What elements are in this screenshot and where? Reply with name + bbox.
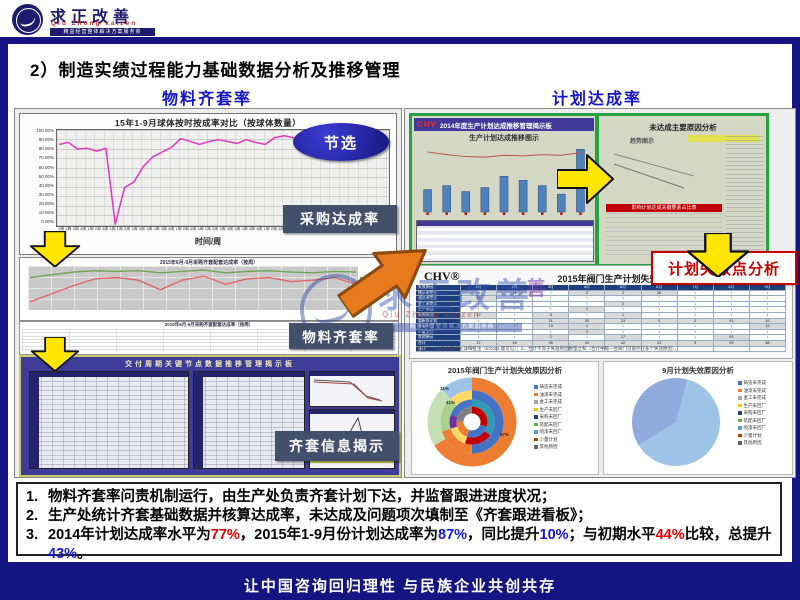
failure-table: 失效原因1月2月3月4月5月6月7月8月9月铸造未完成921\2226\\\油漆…	[416, 285, 786, 352]
watermark-stamp: 善	[526, 272, 546, 301]
dashboard-banner: CHV 2014年度生产计划达成推移管理揭示板	[414, 118, 594, 131]
purchase-rate-callout: 采购达成率	[283, 205, 397, 233]
right-column-header: 计划达成率	[404, 85, 790, 109]
sep-pie-panel: 9月计划失效原因分析 铸造未完成油漆未完成金工未完成生产未回厂采购未回厂装配未回…	[603, 361, 793, 475]
red-table-header: 影响计划达成关键要素占比表	[606, 204, 722, 212]
slide: 求正改善 Qiu Zhong kaizen 精益经营整体解决方案服务商 2）制造…	[0, 0, 800, 600]
note-text: 物料齐套率问责机制运行，由生产处负责齐套计划下达，并监督跟进进度状况；	[48, 488, 556, 507]
sunburst-legend: 铸造未完成油漆未完成金工未完成生产未回厂采购未回厂装配未回厂喷漆未回厂少量计划其…	[534, 384, 562, 450]
down-arrow-2	[27, 337, 83, 371]
kit-info-callout: 齐套信息揭示	[275, 431, 399, 461]
failure-table-footnote: 备注：1、失效数量录入详细批注（EXCEL版可见）；2、合计不等于失效原因数量之…	[416, 346, 786, 352]
note-marker: 3.	[26, 526, 48, 564]
pie-chart	[630, 376, 722, 468]
down-arrow-icon	[32, 337, 79, 371]
note-3: 3. 2014年计划达成率水平为77%，2015年1-9月份计划达成率为87%，…	[26, 526, 772, 564]
left-border	[0, 44, 8, 562]
pie-title: 9月计划失效原因分析	[604, 365, 792, 376]
dashboard-title: 2014年度生产计划达成推移管理揭示板	[440, 120, 552, 130]
company-logo-icon	[12, 4, 43, 35]
sunburst-title: 2015年阀门生产计划失效原因分析	[412, 365, 598, 376]
page-title: 2）制造实绩过程能力基础数据分析及推移管理	[30, 56, 400, 81]
note-2: 2. 生产处统计齐套基础数据并核算达成率，未达成及问题项次填制至《齐套跟进看板》…	[26, 507, 772, 526]
excerpt-callout: 节选	[293, 123, 389, 161]
logo-subtitle: Qiu Zhong kaizen	[51, 20, 137, 27]
down-arrow-3	[683, 233, 753, 277]
trend-chart	[608, 146, 712, 198]
note-text: 生产处统计齐套基础数据并核算达成率，未达成及问题项次填制至《齐套跟进看板》；	[48, 507, 592, 526]
dashboard-table	[416, 220, 594, 262]
plan-achievement-panel: CHV 2014年度生产计划达成推移管理揭示板 生产计划达成推移图示 未达成主要…	[404, 108, 796, 478]
footer-slogan: 让中国咨询回归理性 与民族企业共创共存	[0, 562, 800, 600]
logo-tagline: 精益经营整体解决方案服务商	[50, 28, 155, 36]
summary-notes: 1. 物料齐套率问责机制运行，由生产处负责齐套计划下达，并监督跟进进度状况； 2…	[16, 482, 782, 556]
line-series	[28, 266, 358, 310]
down-arrow-1	[27, 231, 83, 267]
right-arrow	[557, 151, 617, 207]
sunburst-label: 11%	[440, 386, 449, 391]
sunburst-label: 41%	[446, 400, 455, 405]
note-1: 1. 物料齐套率问责机制运行，由生产处负责齐套计划下达，并监督跟进进度状况；	[26, 488, 772, 507]
pie-legend: 铸造未完成油漆未完成金工未完成生产未回厂采购未回厂装配未回厂喷漆未回厂少量计划其…	[738, 380, 766, 446]
trend-label: 趋势图示	[630, 136, 654, 145]
material-rate-callout: 物料齐套率	[289, 323, 393, 349]
note-marker: 1.	[26, 488, 48, 507]
dashboard-left-subtitle: 生产计划达成推移图示	[414, 133, 594, 143]
sunburst-panel: 2015年阀门生产计划失效原因分析 41% 57% 11% 铸造未完成油漆未完成…	[411, 361, 599, 475]
sunburst-label: 57%	[500, 432, 509, 437]
board-chart-top	[309, 371, 395, 407]
note-text: 2014年计划达成率水平为77%，2015年1-9月份计划达成率为87%，同比提…	[48, 526, 772, 564]
right-arrow-icon	[557, 155, 613, 203]
down-arrow-icon	[688, 233, 748, 277]
left-column-header: 物料齐套率	[14, 85, 400, 109]
down-arrow-icon	[31, 231, 80, 266]
header-divider-band	[0, 37, 800, 44]
plot-area	[28, 266, 358, 310]
dashboard-right-subtitle: 未达成主要原因分析	[600, 122, 766, 133]
board-table-left	[29, 371, 189, 469]
chv-logo: CHV	[417, 120, 437, 129]
y-axis-ticks: 100.00%90.00%80.00%70.00%60.00%50.00%40.…	[24, 129, 56, 225]
note-marker: 2.	[26, 507, 48, 526]
